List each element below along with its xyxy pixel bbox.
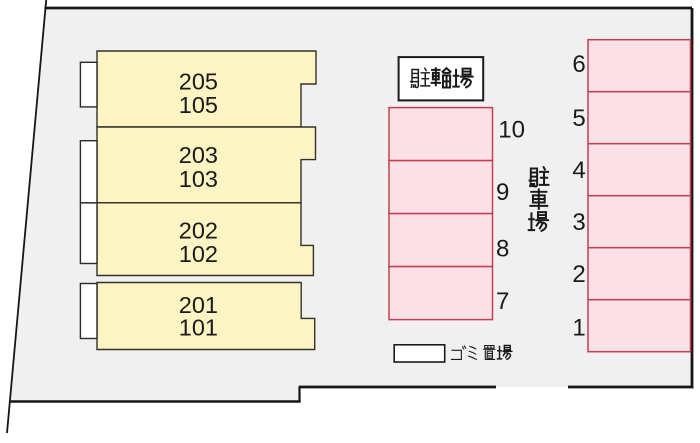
svg-text:102: 102	[179, 241, 218, 267]
svg-text:8: 8	[496, 236, 509, 263]
svg-text:103: 103	[179, 166, 218, 192]
svg-text:7: 7	[496, 288, 509, 315]
svg-text:105: 105	[179, 92, 218, 118]
svg-text:203: 203	[179, 142, 218, 168]
svg-text:5: 5	[572, 105, 585, 132]
svg-text:9: 9	[496, 179, 509, 206]
svg-text:6: 6	[572, 51, 585, 78]
svg-text:10: 10	[498, 117, 525, 144]
svg-text:4: 4	[572, 157, 585, 184]
svg-text:2: 2	[572, 261, 585, 288]
svg-text:3: 3	[572, 209, 585, 236]
svg-text:205: 205	[179, 69, 218, 95]
svg-text:202: 202	[179, 218, 218, 244]
svg-text:101: 101	[179, 315, 218, 341]
svg-text:1: 1	[572, 315, 585, 342]
